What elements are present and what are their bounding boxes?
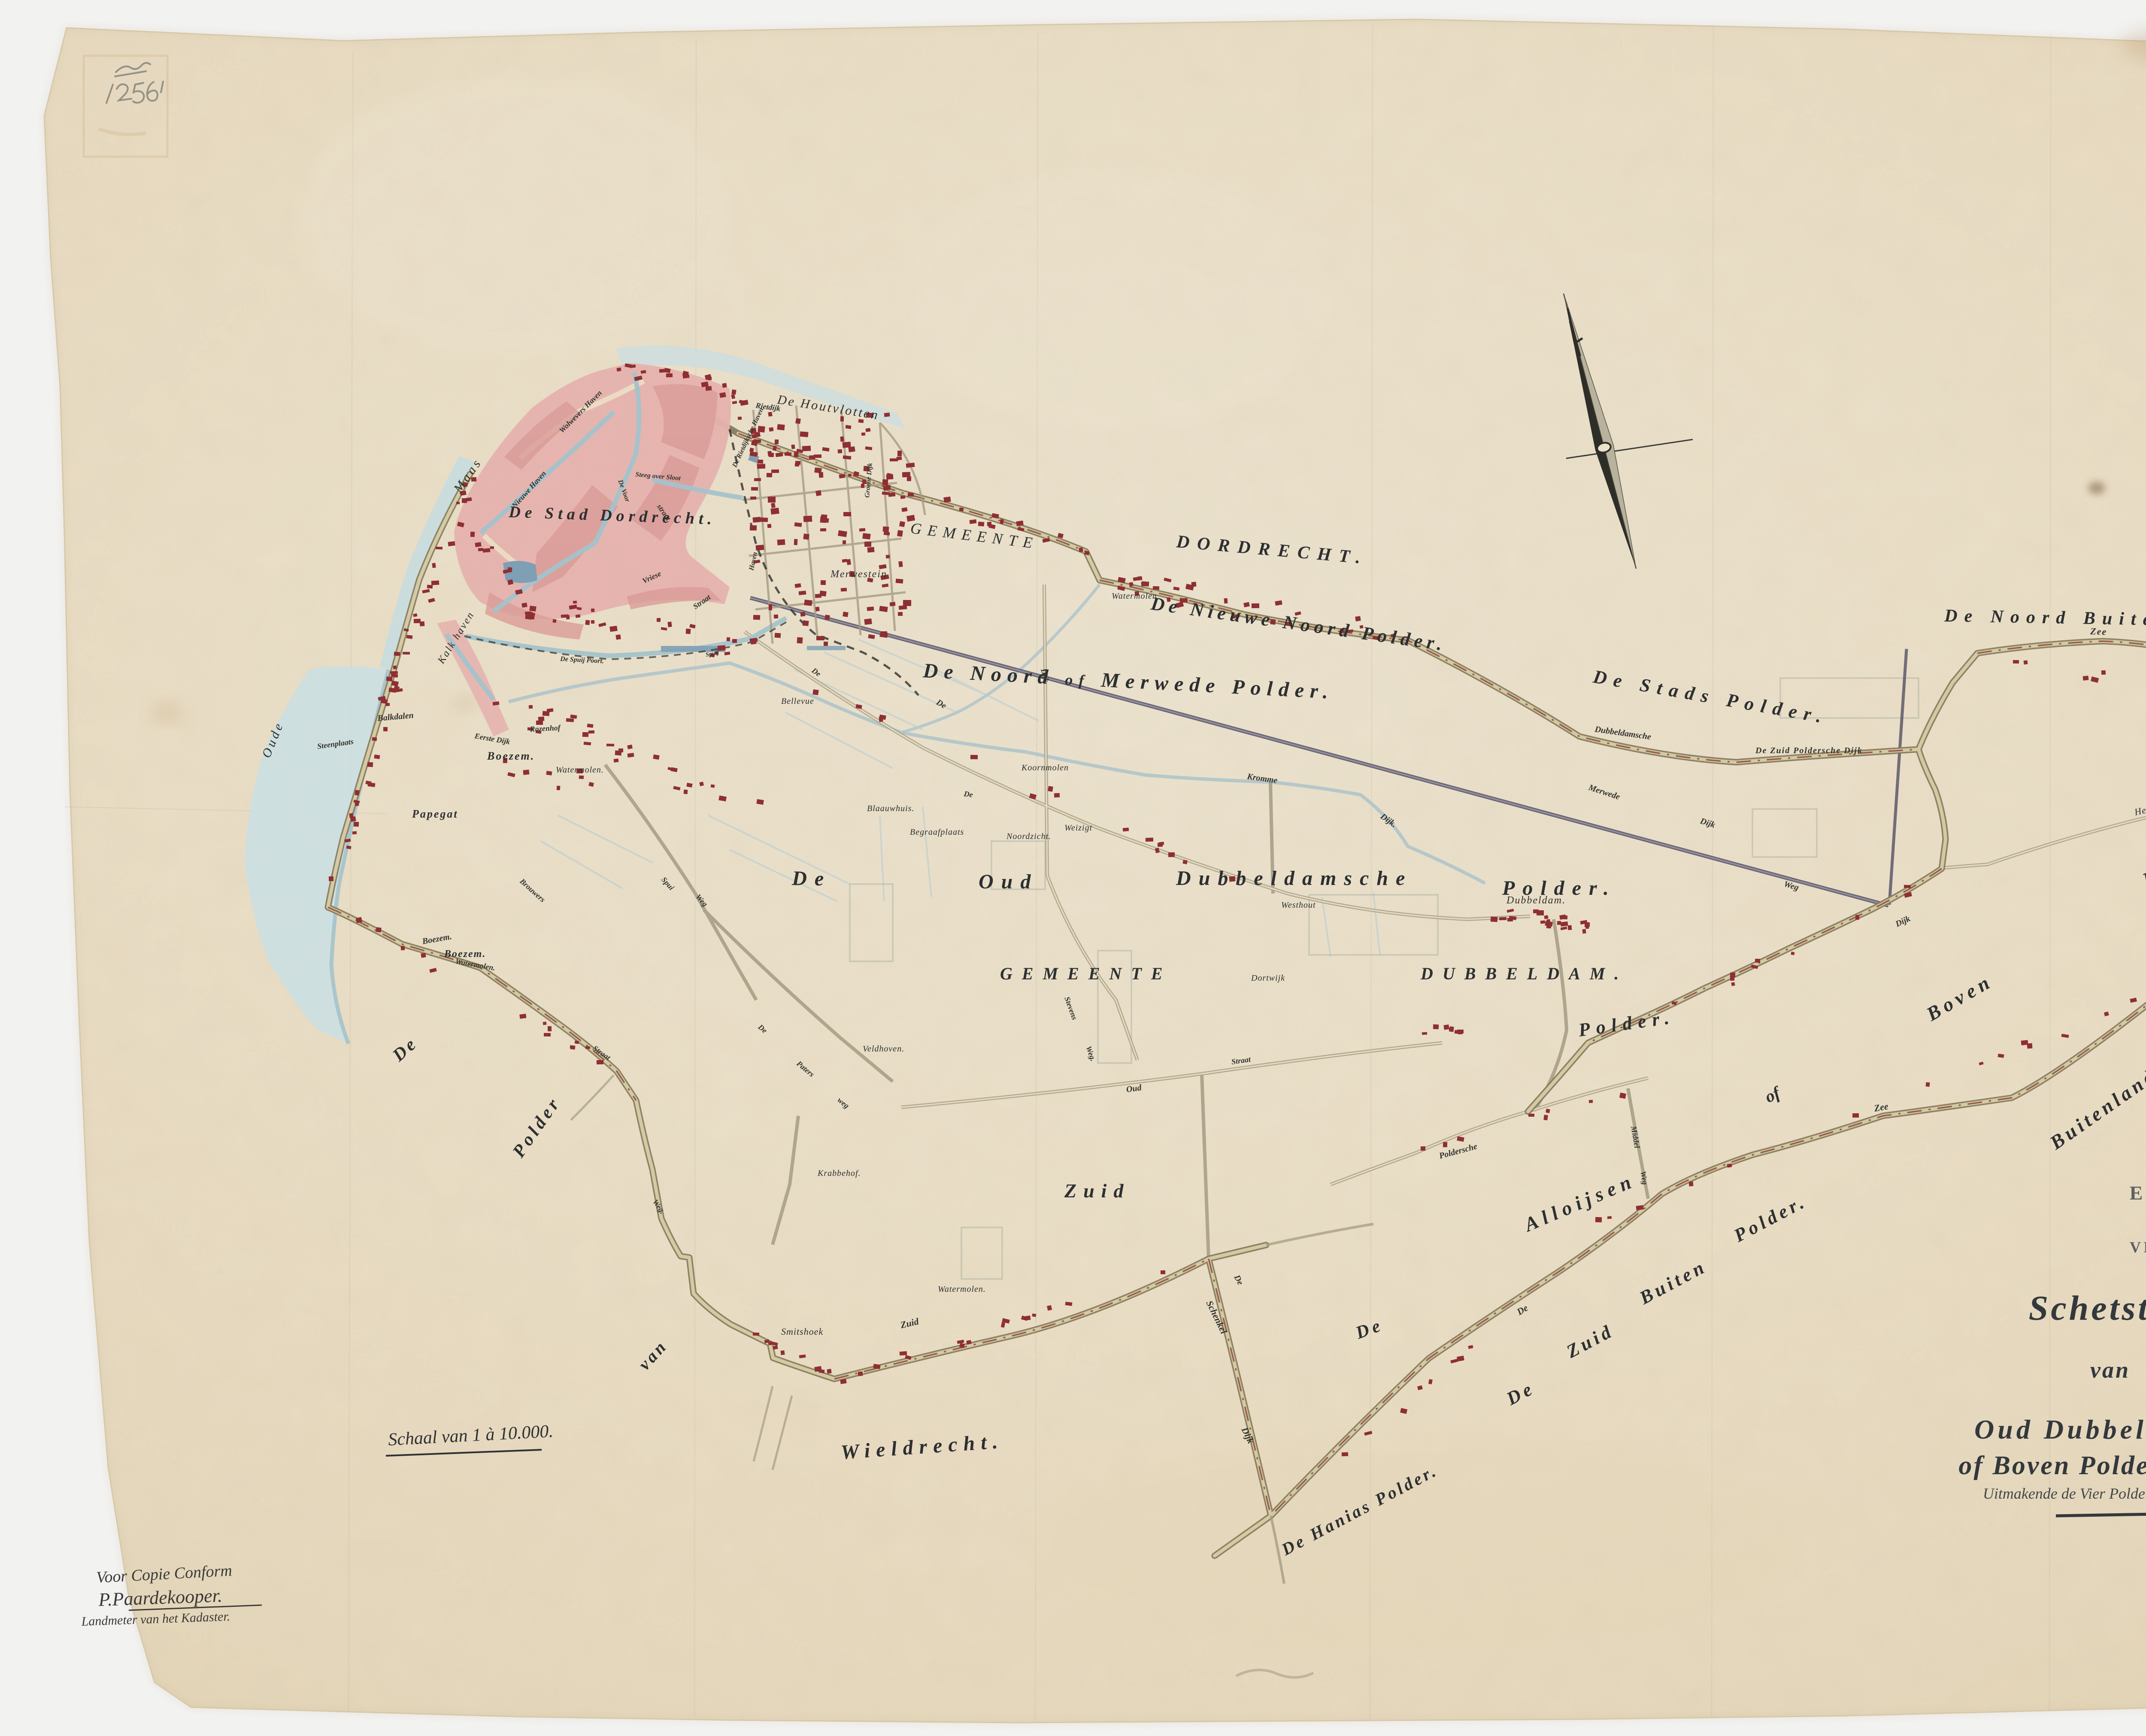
svg-text:Noordzicht.: Noordzicht.: [1006, 832, 1051, 841]
svg-text:van: van: [2090, 1357, 2130, 1383]
svg-text:P.Paardekooper.: P.Paardekooper.: [98, 1585, 223, 1610]
svg-text:Uitmakende de Vier Polders in: Uitmakende de Vier Polders in gemeene Dy…: [1983, 1485, 2146, 1502]
svg-text:Boezem.: Boezem.: [487, 750, 535, 762]
svg-text:Westhout: Westhout: [1281, 900, 1316, 910]
svg-text:Dubbeldamsche: Dubbeldamsche: [1176, 867, 1412, 890]
svg-text:Papegat: Papegat: [412, 808, 458, 820]
svg-text:Zee: Zee: [2090, 626, 2107, 637]
svg-text:of Boven Polder en Noord of Me: of Boven Polder en Noord of Merwede Pold…: [1958, 1451, 2146, 1480]
svg-text:Smitshoek: Smitshoek: [781, 1326, 823, 1337]
svg-text:Veldhoven.: Veldhoven.: [863, 1044, 904, 1054]
svg-text:Watermolen.: Watermolen.: [556, 765, 604, 775]
svg-text:Merwestein: Merwestein: [830, 569, 887, 580]
svg-text:De: De: [963, 789, 973, 799]
svg-text:De Zuid Poldersche Dijk: De Zuid Poldersche Dijk: [1755, 746, 1863, 755]
svg-text:Schetsteekening: Schetsteekening: [2029, 1288, 2146, 1327]
svg-text:De: De: [791, 867, 832, 891]
svg-text:Watermolen: Watermolen: [1112, 591, 1157, 601]
svg-text:Blaauwhuis.: Blaauwhuis.: [867, 804, 914, 813]
svg-text:GEMEENTE: GEMEENTE: [1000, 964, 1172, 983]
svg-text:Krabbehof.: Krabbehof.: [817, 1169, 861, 1178]
svg-text:VIER POLDERS.: VIER POLDERS.: [2130, 1239, 2146, 1256]
svg-text:Oud Dubbeldam, Zuid Polder, Al: Oud Dubbeldam, Zuid Polder, Alloysen: [1974, 1414, 2146, 1445]
svg-text:Koornmolen: Koornmolen: [1021, 763, 1069, 773]
svg-text:Zuid: Zuid: [1064, 1180, 1130, 1202]
svg-text:DUBBELDAM.: DUBBELDAM.: [1420, 964, 1628, 983]
svg-text:Weizigt: Weizigt: [1064, 823, 1092, 833]
svg-text:Oud: Oud: [979, 870, 1038, 893]
svg-text:Begraafplaats: Begraafplaats: [910, 827, 964, 837]
svg-text:Dubbeldam.: Dubbeldam.: [1506, 895, 1566, 906]
svg-text:Bellevue: Bellevue: [781, 697, 814, 706]
svg-text:Rozenhof: Rozenhof: [529, 723, 561, 733]
svg-text:Watermolen.: Watermolen.: [938, 1285, 986, 1294]
svg-text:EIGENDOM: EIGENDOM: [2130, 1182, 2146, 1204]
svg-text:Dortwijk: Dortwijk: [1251, 973, 1285, 983]
